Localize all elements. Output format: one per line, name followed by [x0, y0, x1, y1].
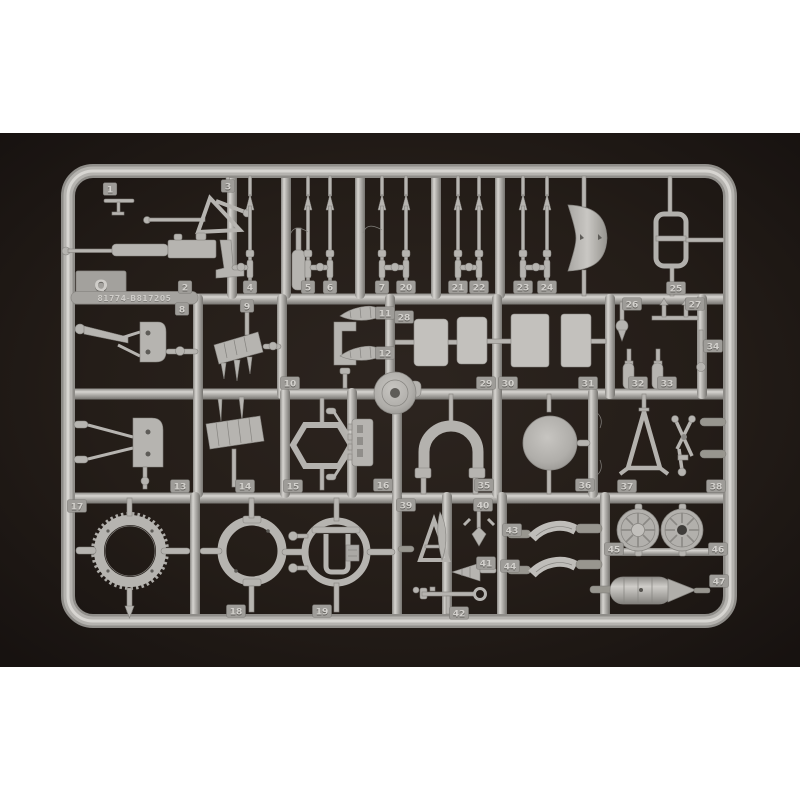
svg-text:32: 32 — [632, 379, 645, 389]
part-number-tag-22: 2222 — [470, 281, 489, 295]
part-number-tag-47: 4747 — [710, 575, 729, 589]
svg-text:34: 34 — [707, 342, 720, 352]
part-number-tag-38: 3838 — [707, 480, 726, 494]
svg-text:5: 5 — [305, 283, 311, 293]
svg-text:13: 13 — [174, 482, 187, 492]
svg-text:29: 29 — [480, 379, 493, 389]
svg-text:14: 14 — [239, 482, 252, 492]
svg-text:21: 21 — [452, 283, 465, 293]
part-number-tag-26: 2626 — [623, 298, 642, 312]
part-number-tag-14: 1414 — [236, 480, 255, 494]
part-number-tag-43: 4343 — [503, 524, 522, 538]
part-number-tag-30: 3030 — [499, 377, 518, 391]
svg-text:17: 17 — [71, 502, 84, 512]
svg-text:22: 22 — [473, 283, 486, 293]
svg-text:24: 24 — [541, 283, 554, 293]
part-number-tag-3: 33 — [221, 180, 235, 194]
part-number-tag-10: 1010 — [281, 377, 300, 391]
part-number-tag-25: 2525 — [667, 282, 686, 296]
part-number-tag-39: 3939 — [397, 499, 416, 513]
svg-text:6: 6 — [327, 283, 333, 293]
svg-text:47: 47 — [713, 577, 726, 587]
svg-text:41: 41 — [480, 559, 493, 569]
svg-text:1: 1 — [107, 185, 113, 195]
svg-text:43: 43 — [506, 526, 519, 536]
part-number-tag-45: 4545 — [605, 543, 624, 557]
svg-text:20: 20 — [400, 283, 413, 293]
part-number-tag-21: 2121 — [449, 281, 468, 295]
product-photo-page: Q Q 81774-B817205 81774-B817205 11223344… — [0, 0, 800, 800]
part-number-tag-28: 2828 — [395, 311, 414, 325]
part-number-tag-42: 4242 — [450, 607, 469, 621]
part-number-tag-27: 2727 — [686, 298, 705, 312]
part-number-tag-18: 1818 — [227, 605, 246, 619]
svg-text:38: 38 — [710, 482, 723, 492]
svg-text:39: 39 — [400, 501, 413, 511]
svg-text:33: 33 — [661, 379, 674, 389]
part-number-tag-37: 3737 — [618, 480, 637, 494]
part-number-tag-4: 44 — [243, 281, 257, 295]
svg-text:8: 8 — [179, 305, 185, 315]
svg-text:9: 9 — [244, 302, 250, 312]
part-number-tag-5: 55 — [301, 281, 315, 295]
part-number-tag-40: 4040 — [474, 499, 493, 513]
svg-text:31: 31 — [582, 379, 595, 389]
part-number-tag-6: 66 — [323, 281, 337, 295]
svg-text:27: 27 — [689, 300, 702, 310]
svg-text:35: 35 — [478, 481, 491, 491]
svg-text:16: 16 — [377, 481, 390, 491]
svg-text:2: 2 — [182, 283, 188, 293]
svg-text:15: 15 — [287, 482, 300, 492]
sprue-photo: Q Q 81774-B817205 81774-B817205 11223344… — [0, 0, 800, 800]
part-number-tag-29: 2929 — [477, 377, 496, 391]
part-number-tag-34: 3434 — [704, 340, 723, 354]
svg-text:11: 11 — [379, 309, 392, 319]
svg-text:4: 4 — [247, 283, 253, 293]
svg-text:40: 40 — [477, 501, 490, 511]
part-number-tag-31: 3131 — [579, 377, 598, 391]
svg-text:18: 18 — [230, 607, 243, 617]
part-number-tag-2: 22 — [178, 281, 192, 295]
part-number-tag-12: 1212 — [376, 347, 395, 361]
svg-text:12: 12 — [379, 349, 392, 359]
part-number-tag-19: 1919 — [313, 605, 332, 619]
svg-text:26: 26 — [626, 300, 639, 310]
svg-text:42: 42 — [453, 609, 466, 619]
part-number-tag-17: 1717 — [68, 500, 87, 514]
part-number-tag-35: 3535 — [475, 479, 494, 493]
mold-code: 81774-B817205 — [97, 294, 171, 303]
part-number-tag-20: 2020 — [397, 281, 416, 295]
part-number-tag-41: 4141 — [477, 557, 496, 571]
svg-text:10: 10 — [284, 379, 297, 389]
svg-text:36: 36 — [579, 481, 592, 491]
svg-text:19: 19 — [316, 607, 329, 617]
svg-text:45: 45 — [608, 545, 621, 555]
part-number-tag-7: 77 — [375, 281, 389, 295]
part-number-tag-16: 1616 — [374, 479, 393, 493]
part-number-tag-46: 4646 — [709, 543, 728, 557]
part-number-tag-33: 3333 — [658, 377, 677, 391]
part-number-tag-9: 99 — [240, 300, 254, 314]
svg-text:44: 44 — [504, 562, 517, 572]
part-number-tag-32: 3232 — [629, 377, 648, 391]
mold-code-tab: 81774-B817205 81774-B817205 — [71, 292, 198, 305]
svg-text:25: 25 — [670, 284, 683, 294]
part-number-tag-44: 4444 — [501, 560, 520, 574]
svg-text:7: 7 — [379, 283, 385, 293]
part-number-tag-24: 2424 — [538, 281, 557, 295]
part-number-tag-36: 3636 — [576, 479, 595, 493]
part-number-tag-13: 1313 — [171, 480, 190, 494]
part-number-tag-23: 2323 — [514, 281, 533, 295]
part-number-tag-15: 1515 — [284, 480, 303, 494]
svg-text:46: 46 — [712, 545, 725, 555]
part-number-tag-8: 88 — [175, 303, 189, 317]
svg-text:28: 28 — [398, 313, 411, 323]
svg-text:3: 3 — [225, 182, 231, 192]
svg-text:30: 30 — [502, 379, 515, 389]
part-number-tag-11: 1111 — [376, 307, 395, 321]
svg-text:23: 23 — [517, 283, 530, 293]
svg-text:37: 37 — [621, 482, 634, 492]
part-number-tag-1: 11 — [103, 183, 117, 197]
